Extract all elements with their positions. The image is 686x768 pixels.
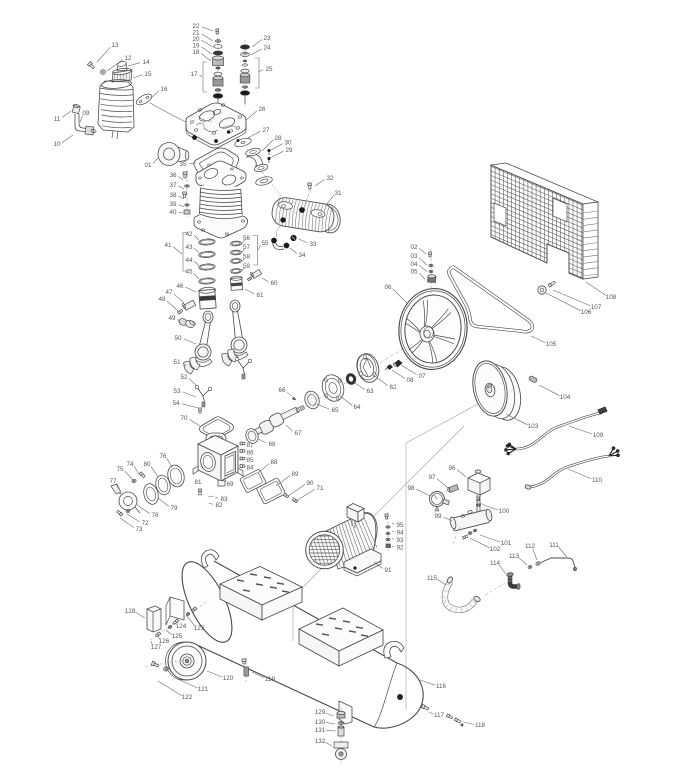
svg-text:06: 06 — [384, 284, 392, 291]
svg-text:12: 12 — [124, 55, 132, 62]
svg-text:115: 115 — [427, 575, 438, 582]
svg-text:102: 102 — [490, 546, 501, 553]
svg-text:118: 118 — [475, 722, 486, 729]
svg-text:31: 31 — [334, 190, 342, 197]
svg-text:64: 64 — [353, 404, 361, 411]
svg-text:90: 90 — [306, 480, 314, 487]
svg-text:17: 17 — [190, 71, 198, 78]
svg-text:24: 24 — [263, 45, 271, 52]
svg-text:60: 60 — [270, 280, 278, 287]
svg-text:37: 37 — [169, 182, 177, 189]
svg-text:97: 97 — [428, 474, 436, 481]
svg-text:109: 109 — [593, 432, 604, 439]
svg-text:104: 104 — [560, 394, 571, 401]
svg-text:129: 129 — [315, 709, 326, 716]
svg-text:43: 43 — [185, 244, 193, 251]
svg-text:75: 75 — [116, 466, 124, 473]
svg-text:62: 62 — [389, 384, 397, 391]
svg-text:100: 100 — [499, 508, 510, 515]
svg-text:114: 114 — [490, 560, 501, 567]
svg-text:27: 27 — [262, 127, 270, 134]
svg-text:95: 95 — [396, 522, 404, 529]
svg-text:16: 16 — [160, 86, 168, 93]
svg-text:30: 30 — [284, 140, 292, 147]
svg-text:108: 108 — [606, 294, 617, 301]
svg-text:04: 04 — [410, 261, 418, 268]
svg-text:10: 10 — [53, 141, 61, 148]
svg-text:122: 122 — [182, 694, 193, 701]
svg-text:132: 132 — [315, 738, 326, 745]
svg-text:41: 41 — [164, 242, 172, 249]
svg-text:98: 98 — [407, 485, 415, 492]
svg-text:32: 32 — [326, 175, 334, 182]
svg-text:18: 18 — [192, 49, 200, 56]
svg-text:74: 74 — [126, 461, 134, 468]
svg-text:69: 69 — [226, 481, 234, 488]
svg-text:92: 92 — [396, 545, 404, 552]
svg-text:42: 42 — [185, 231, 193, 238]
svg-text:48: 48 — [158, 296, 166, 303]
svg-text:09: 09 — [82, 110, 90, 117]
svg-text:113: 113 — [509, 553, 520, 560]
svg-text:96: 96 — [448, 465, 456, 472]
svg-text:91: 91 — [384, 567, 392, 574]
svg-text:128: 128 — [125, 608, 136, 615]
svg-text:28: 28 — [274, 135, 282, 142]
svg-text:72: 72 — [141, 520, 149, 527]
svg-text:58: 58 — [243, 254, 251, 261]
svg-text:63: 63 — [366, 388, 374, 395]
svg-text:14: 14 — [142, 59, 150, 66]
svg-text:07: 07 — [418, 373, 426, 380]
svg-text:99: 99 — [434, 513, 442, 520]
svg-text:80: 80 — [143, 461, 151, 468]
svg-text:117: 117 — [434, 712, 445, 719]
svg-text:103: 103 — [528, 423, 539, 430]
svg-text:11: 11 — [54, 116, 61, 123]
svg-text:52: 52 — [180, 374, 188, 381]
svg-text:120: 120 — [223, 675, 234, 682]
svg-text:67: 67 — [294, 430, 302, 437]
svg-text:78: 78 — [151, 512, 159, 519]
svg-text:08: 08 — [406, 377, 414, 384]
svg-text:79: 79 — [170, 505, 178, 512]
svg-text:38: 38 — [169, 192, 177, 199]
svg-text:51: 51 — [173, 359, 181, 366]
svg-text:50: 50 — [174, 335, 182, 342]
svg-text:66: 66 — [278, 387, 286, 394]
svg-text:49: 49 — [168, 315, 176, 322]
svg-text:85: 85 — [246, 457, 254, 464]
svg-text:39: 39 — [169, 201, 177, 208]
svg-text:05: 05 — [410, 269, 418, 276]
svg-text:94: 94 — [396, 530, 404, 537]
svg-text:47: 47 — [165, 289, 173, 296]
svg-text:13: 13 — [111, 42, 119, 49]
svg-text:93: 93 — [396, 537, 404, 544]
svg-text:68: 68 — [268, 441, 276, 448]
svg-text:44: 44 — [185, 257, 193, 264]
svg-text:53: 53 — [173, 388, 181, 395]
svg-text:123: 123 — [194, 625, 205, 632]
svg-text:77: 77 — [109, 478, 117, 485]
svg-text:59: 59 — [243, 263, 251, 270]
svg-text:23: 23 — [263, 35, 271, 42]
svg-text:45: 45 — [185, 269, 193, 276]
svg-text:127: 127 — [151, 644, 162, 651]
svg-text:33: 33 — [309, 241, 317, 248]
svg-text:116: 116 — [436, 683, 447, 690]
svg-text:01: 01 — [144, 162, 152, 169]
svg-text:84: 84 — [246, 465, 254, 472]
svg-text:124: 124 — [176, 623, 187, 630]
svg-text:88: 88 — [270, 459, 278, 466]
svg-text:40: 40 — [169, 209, 177, 216]
svg-text:106: 106 — [581, 309, 592, 316]
svg-text:55: 55 — [261, 240, 269, 247]
svg-text:35: 35 — [179, 161, 187, 168]
svg-text:26: 26 — [258, 106, 266, 113]
svg-text:82: 82 — [215, 502, 223, 509]
svg-text:70: 70 — [180, 415, 188, 422]
svg-text:121: 121 — [198, 686, 209, 693]
svg-text:131: 131 — [315, 727, 326, 734]
svg-text:76: 76 — [159, 453, 167, 460]
svg-text:73: 73 — [135, 526, 143, 533]
svg-text:81: 81 — [194, 479, 202, 486]
svg-text:112: 112 — [525, 543, 536, 550]
svg-text:03: 03 — [410, 253, 418, 260]
svg-text:107: 107 — [591, 304, 602, 311]
svg-text:130: 130 — [315, 719, 326, 726]
svg-text:89: 89 — [291, 471, 299, 478]
svg-text:25: 25 — [265, 66, 273, 73]
svg-text:119: 119 — [265, 676, 276, 683]
svg-text:71: 71 — [316, 485, 324, 492]
svg-text:15: 15 — [144, 71, 152, 78]
svg-text:105: 105 — [546, 341, 557, 348]
svg-text:86: 86 — [246, 450, 254, 457]
svg-text:101: 101 — [501, 540, 512, 547]
svg-text:111: 111 — [549, 542, 559, 549]
svg-text:125: 125 — [172, 633, 183, 640]
svg-text:29: 29 — [285, 147, 293, 154]
svg-text:36: 36 — [169, 172, 177, 179]
svg-text:02: 02 — [410, 244, 418, 251]
svg-text:34: 34 — [298, 252, 306, 259]
svg-text:46: 46 — [176, 283, 184, 290]
svg-text:54: 54 — [172, 400, 180, 407]
svg-text:65: 65 — [331, 407, 339, 414]
svg-text:61: 61 — [256, 292, 264, 299]
svg-text:110: 110 — [592, 477, 603, 484]
